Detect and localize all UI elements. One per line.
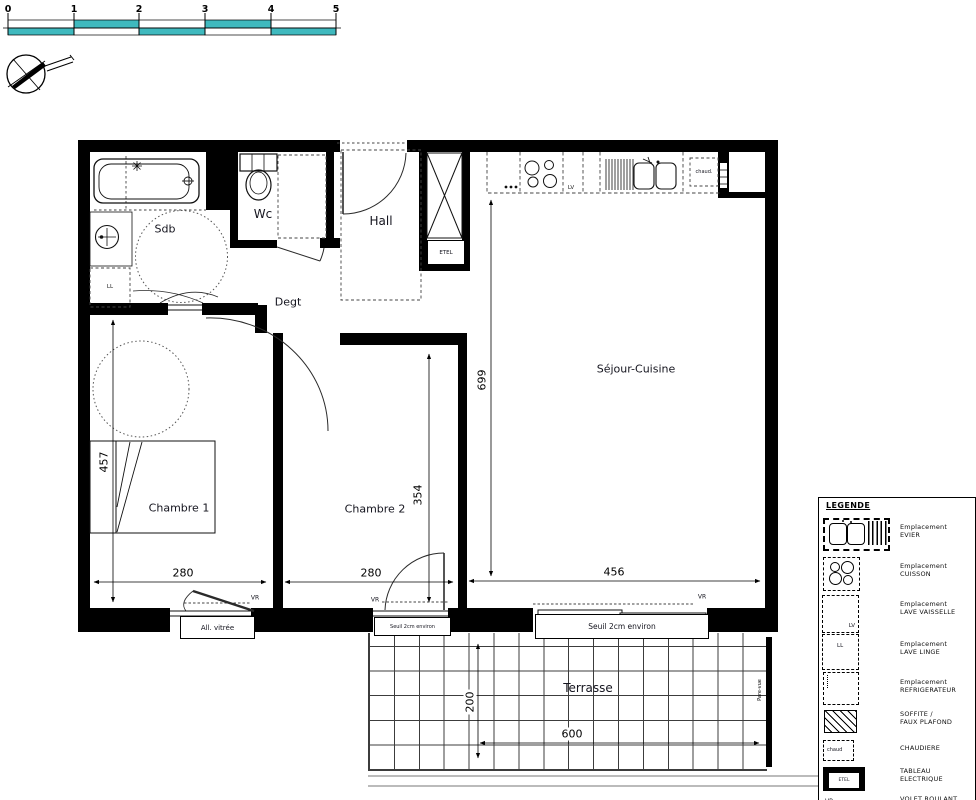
room-label-chambre2: Chambre 2: [345, 503, 406, 516]
etel-box: ETEL: [427, 240, 465, 265]
pare-vue-label: Pare-vue: [757, 679, 763, 701]
legend-chaudiere-icon: chaud: [823, 740, 854, 761]
dim-200: 200: [464, 690, 477, 715]
dim-456: 456: [602, 566, 627, 579]
legend-label-tableau-2: ELECTRIQUE: [900, 775, 943, 783]
dim-699: 699: [476, 368, 489, 393]
legend-label-evier-2: EVIER: [900, 531, 920, 539]
washbasin: [90, 212, 132, 266]
kitchen-sink: [606, 157, 676, 190]
vr-label-bay: VR: [698, 594, 706, 601]
legend-label-soffite-1: SOFFITE /: [900, 710, 933, 718]
vr-label-chambre2: VR: [371, 597, 379, 604]
bathtub: [94, 159, 199, 203]
legend-label-lv-1: Emplacement: [900, 600, 947, 608]
legend-label-cuisson-2: CUISSON: [900, 570, 931, 578]
legend-label-ll-1: Emplacement: [900, 640, 947, 648]
legend-label-ll-2: LAVE LINGE: [900, 648, 940, 656]
seuil-box-bay: Seuil 2cm environ: [535, 614, 709, 639]
legend-label-cuisson-1: Emplacement: [900, 562, 947, 570]
legend-evier-icon: [823, 518, 890, 551]
cooktop: [505, 161, 557, 189]
closet: [427, 153, 462, 238]
legend-tableau-icon: ETEL: [823, 767, 865, 791]
legend-cuisson-icon: [823, 557, 860, 591]
seuil-label-chambre2: Seuil 2cm environ: [390, 624, 435, 630]
legend-title: LEGENDE: [826, 501, 870, 510]
room-label-wc: Wc: [254, 207, 272, 221]
vr-label-chambre1: VR: [251, 595, 259, 602]
legend-label-chaudiere: CHAUDIERE: [900, 744, 940, 752]
legend-chaud-text: chaud: [827, 747, 842, 753]
legend-label-refrig-2: REFRIGERATEUR: [900, 686, 956, 694]
legend-lv-icon: LV: [822, 595, 859, 633]
room-label-hall: Hall: [369, 214, 392, 228]
legend-label-refrig-1: Emplacement: [900, 678, 947, 686]
north-compass-icon: [7, 55, 74, 93]
seuil-label-bay: Seuil 2cm environ: [588, 622, 655, 631]
all-vitree-label: All. vitrée: [201, 624, 234, 632]
legend-refrigerateur-icon: [823, 672, 859, 705]
floor-plan-page: 0 1 2 3 4 5: [0, 0, 976, 800]
chaud-label: chaud.: [696, 169, 713, 175]
duct-slot: [720, 163, 727, 188]
legend-lv-text: LV: [849, 623, 855, 629]
dim-354: 354: [412, 483, 425, 508]
legend-label-lv-2: LAVE VAISSELLE: [900, 608, 955, 616]
room-label-sdb: Sdb: [155, 223, 176, 236]
scale-bar: [3, 13, 341, 35]
legend-label-soffite-2: FAUX PLAFOND: [900, 718, 952, 726]
room-label-degt: Degt: [275, 296, 302, 309]
doors: [133, 152, 444, 611]
dim-280-chambre2: 280: [359, 567, 384, 580]
legend-soffite-icon: [824, 710, 857, 733]
legend-label-volet: VOLET ROULANT: [900, 795, 957, 800]
room-label-chambre1: Chambre 1: [149, 502, 210, 515]
seuil-box-chambre2: Seuil 2cm environ: [374, 617, 451, 636]
dim-457: 457: [98, 450, 111, 475]
all-vitree-box: All. vitrée: [180, 616, 255, 639]
legend-label-evier-1: Emplacement: [900, 523, 947, 531]
dim-600: 600: [560, 728, 585, 741]
legend-label-tableau-1: TABLEAU: [900, 767, 931, 775]
ll-label: LL: [107, 284, 113, 290]
legend-ll-icon: LL: [822, 634, 859, 670]
etel-label: ETEL: [439, 250, 452, 256]
legend-ll-text: LL: [837, 643, 843, 649]
lv-label: LV: [568, 185, 574, 191]
toilet: [240, 154, 277, 200]
walls: [78, 140, 778, 767]
dimension-lines: [94, 200, 760, 758]
room-label-sejour-cuisine: Séjour-Cuisine: [597, 363, 676, 376]
legend-etel-text: ETEL: [829, 773, 859, 788]
dim-280-chambre1: 280: [171, 567, 196, 580]
legend-panel: LEGENDE LV LL: [818, 497, 976, 800]
room-label-terrasse: Terrasse: [563, 681, 613, 695]
